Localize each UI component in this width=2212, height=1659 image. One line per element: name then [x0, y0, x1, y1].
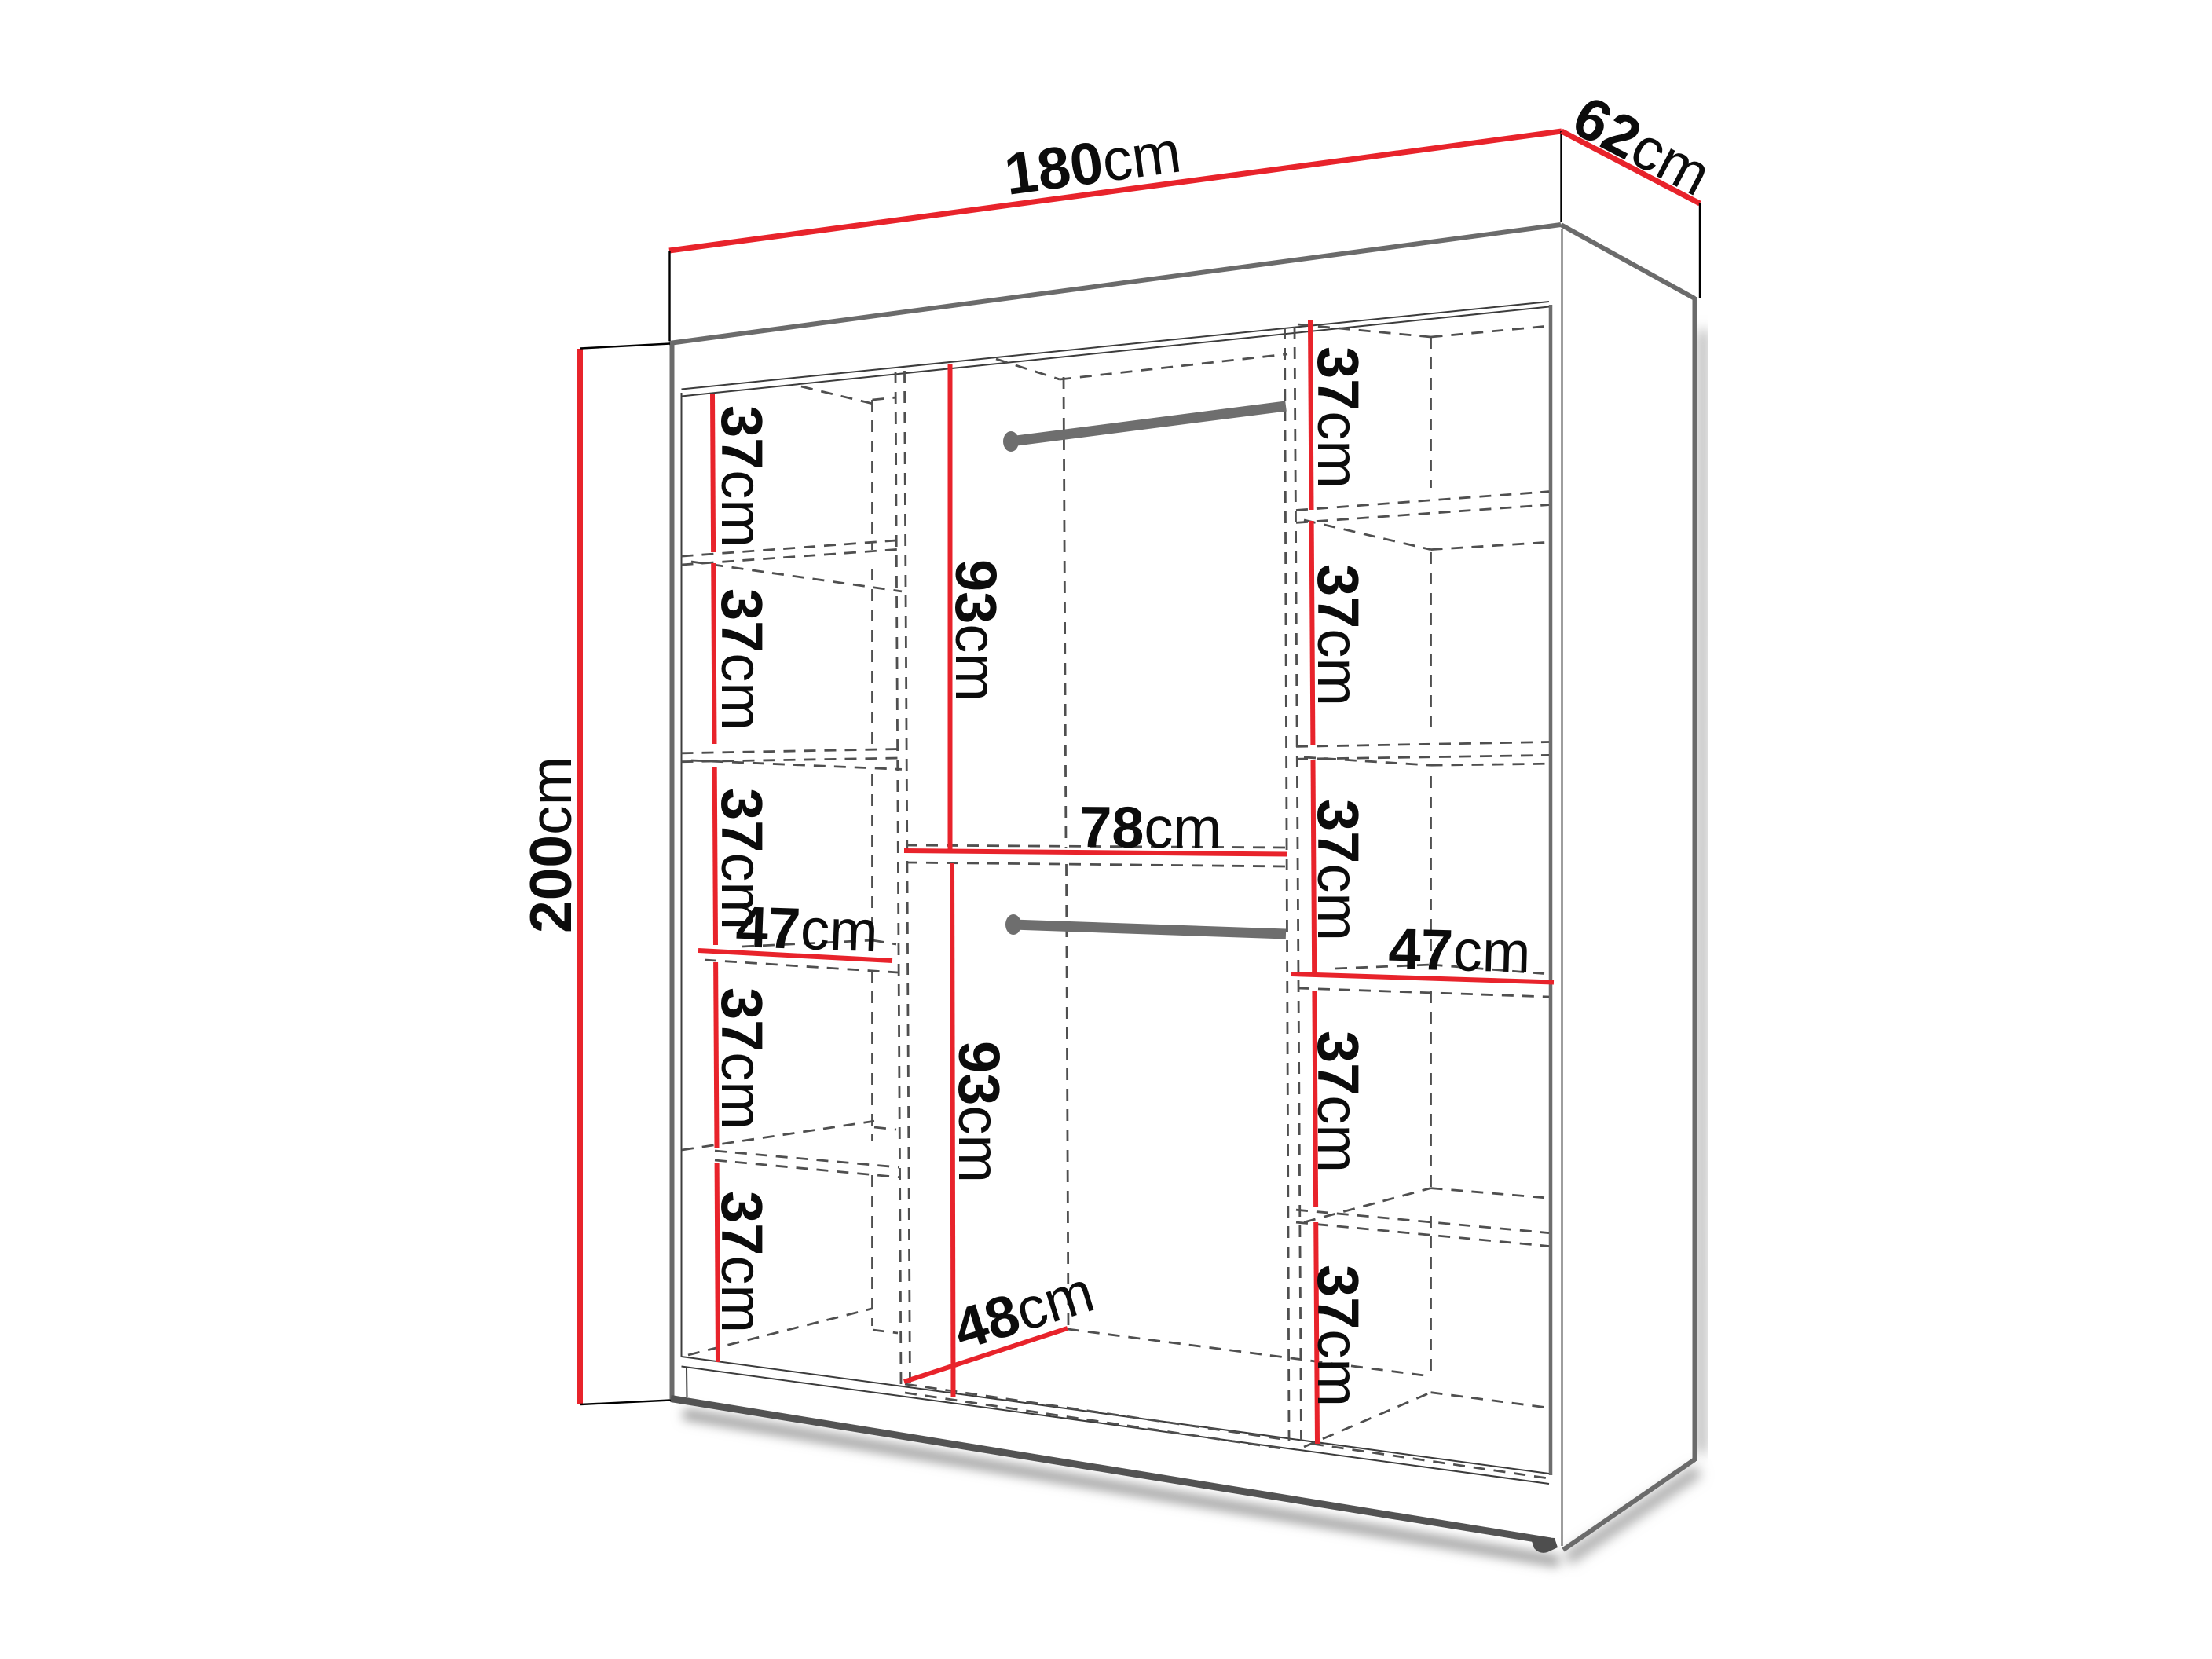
svg-text:37cm: 37cm	[709, 987, 775, 1130]
svg-text:37cm: 37cm	[709, 1191, 775, 1333]
svg-text:47cm: 47cm	[1388, 916, 1532, 985]
svg-text:37cm: 37cm	[1306, 346, 1371, 489]
svg-text:47cm: 47cm	[734, 894, 879, 964]
svg-text:62cm: 62cm	[1563, 83, 1721, 208]
svg-text:93cm: 93cm	[947, 1041, 1012, 1183]
svg-text:37cm: 37cm	[1306, 564, 1371, 706]
svg-text:37cm: 37cm	[1306, 799, 1371, 941]
svg-text:93cm: 93cm	[943, 559, 1009, 701]
svg-text:37cm: 37cm	[709, 588, 775, 731]
svg-text:37cm: 37cm	[1306, 1265, 1371, 1407]
svg-text:37cm: 37cm	[709, 405, 775, 548]
svg-text:180cm: 180cm	[1001, 118, 1185, 207]
svg-text:78cm: 78cm	[1079, 794, 1222, 861]
svg-text:48cm: 48cm	[946, 1258, 1101, 1362]
svg-text:37cm: 37cm	[1306, 1031, 1371, 1173]
svg-text:200cm: 200cm	[518, 756, 584, 933]
